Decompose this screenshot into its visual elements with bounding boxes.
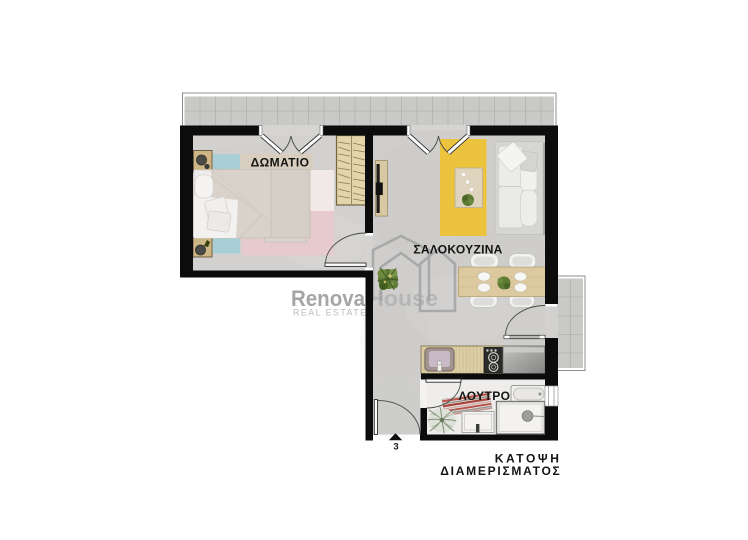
svg-text:ΣΑΛΟΚΟΥΖΙΝΑ: ΣΑΛΟΚΟΥΖΙΝΑ bbox=[413, 243, 502, 257]
svg-text:ΔΩΜΑΤΙΟ: ΔΩΜΑΤΙΟ bbox=[251, 156, 310, 170]
svg-text:REAL ESTATE: REAL ESTATE bbox=[293, 308, 368, 318]
svg-text:House: House bbox=[367, 286, 438, 311]
svg-text:ΔΙΑΜΕΡΙΣΜΑΤΟΣ: ΔΙΑΜΕΡΙΣΜΑΤΟΣ bbox=[440, 464, 561, 478]
svg-text:3: 3 bbox=[393, 442, 398, 453]
svg-text:ΛΟΥΤΡΟ: ΛΟΥΤΡΟ bbox=[459, 389, 511, 403]
